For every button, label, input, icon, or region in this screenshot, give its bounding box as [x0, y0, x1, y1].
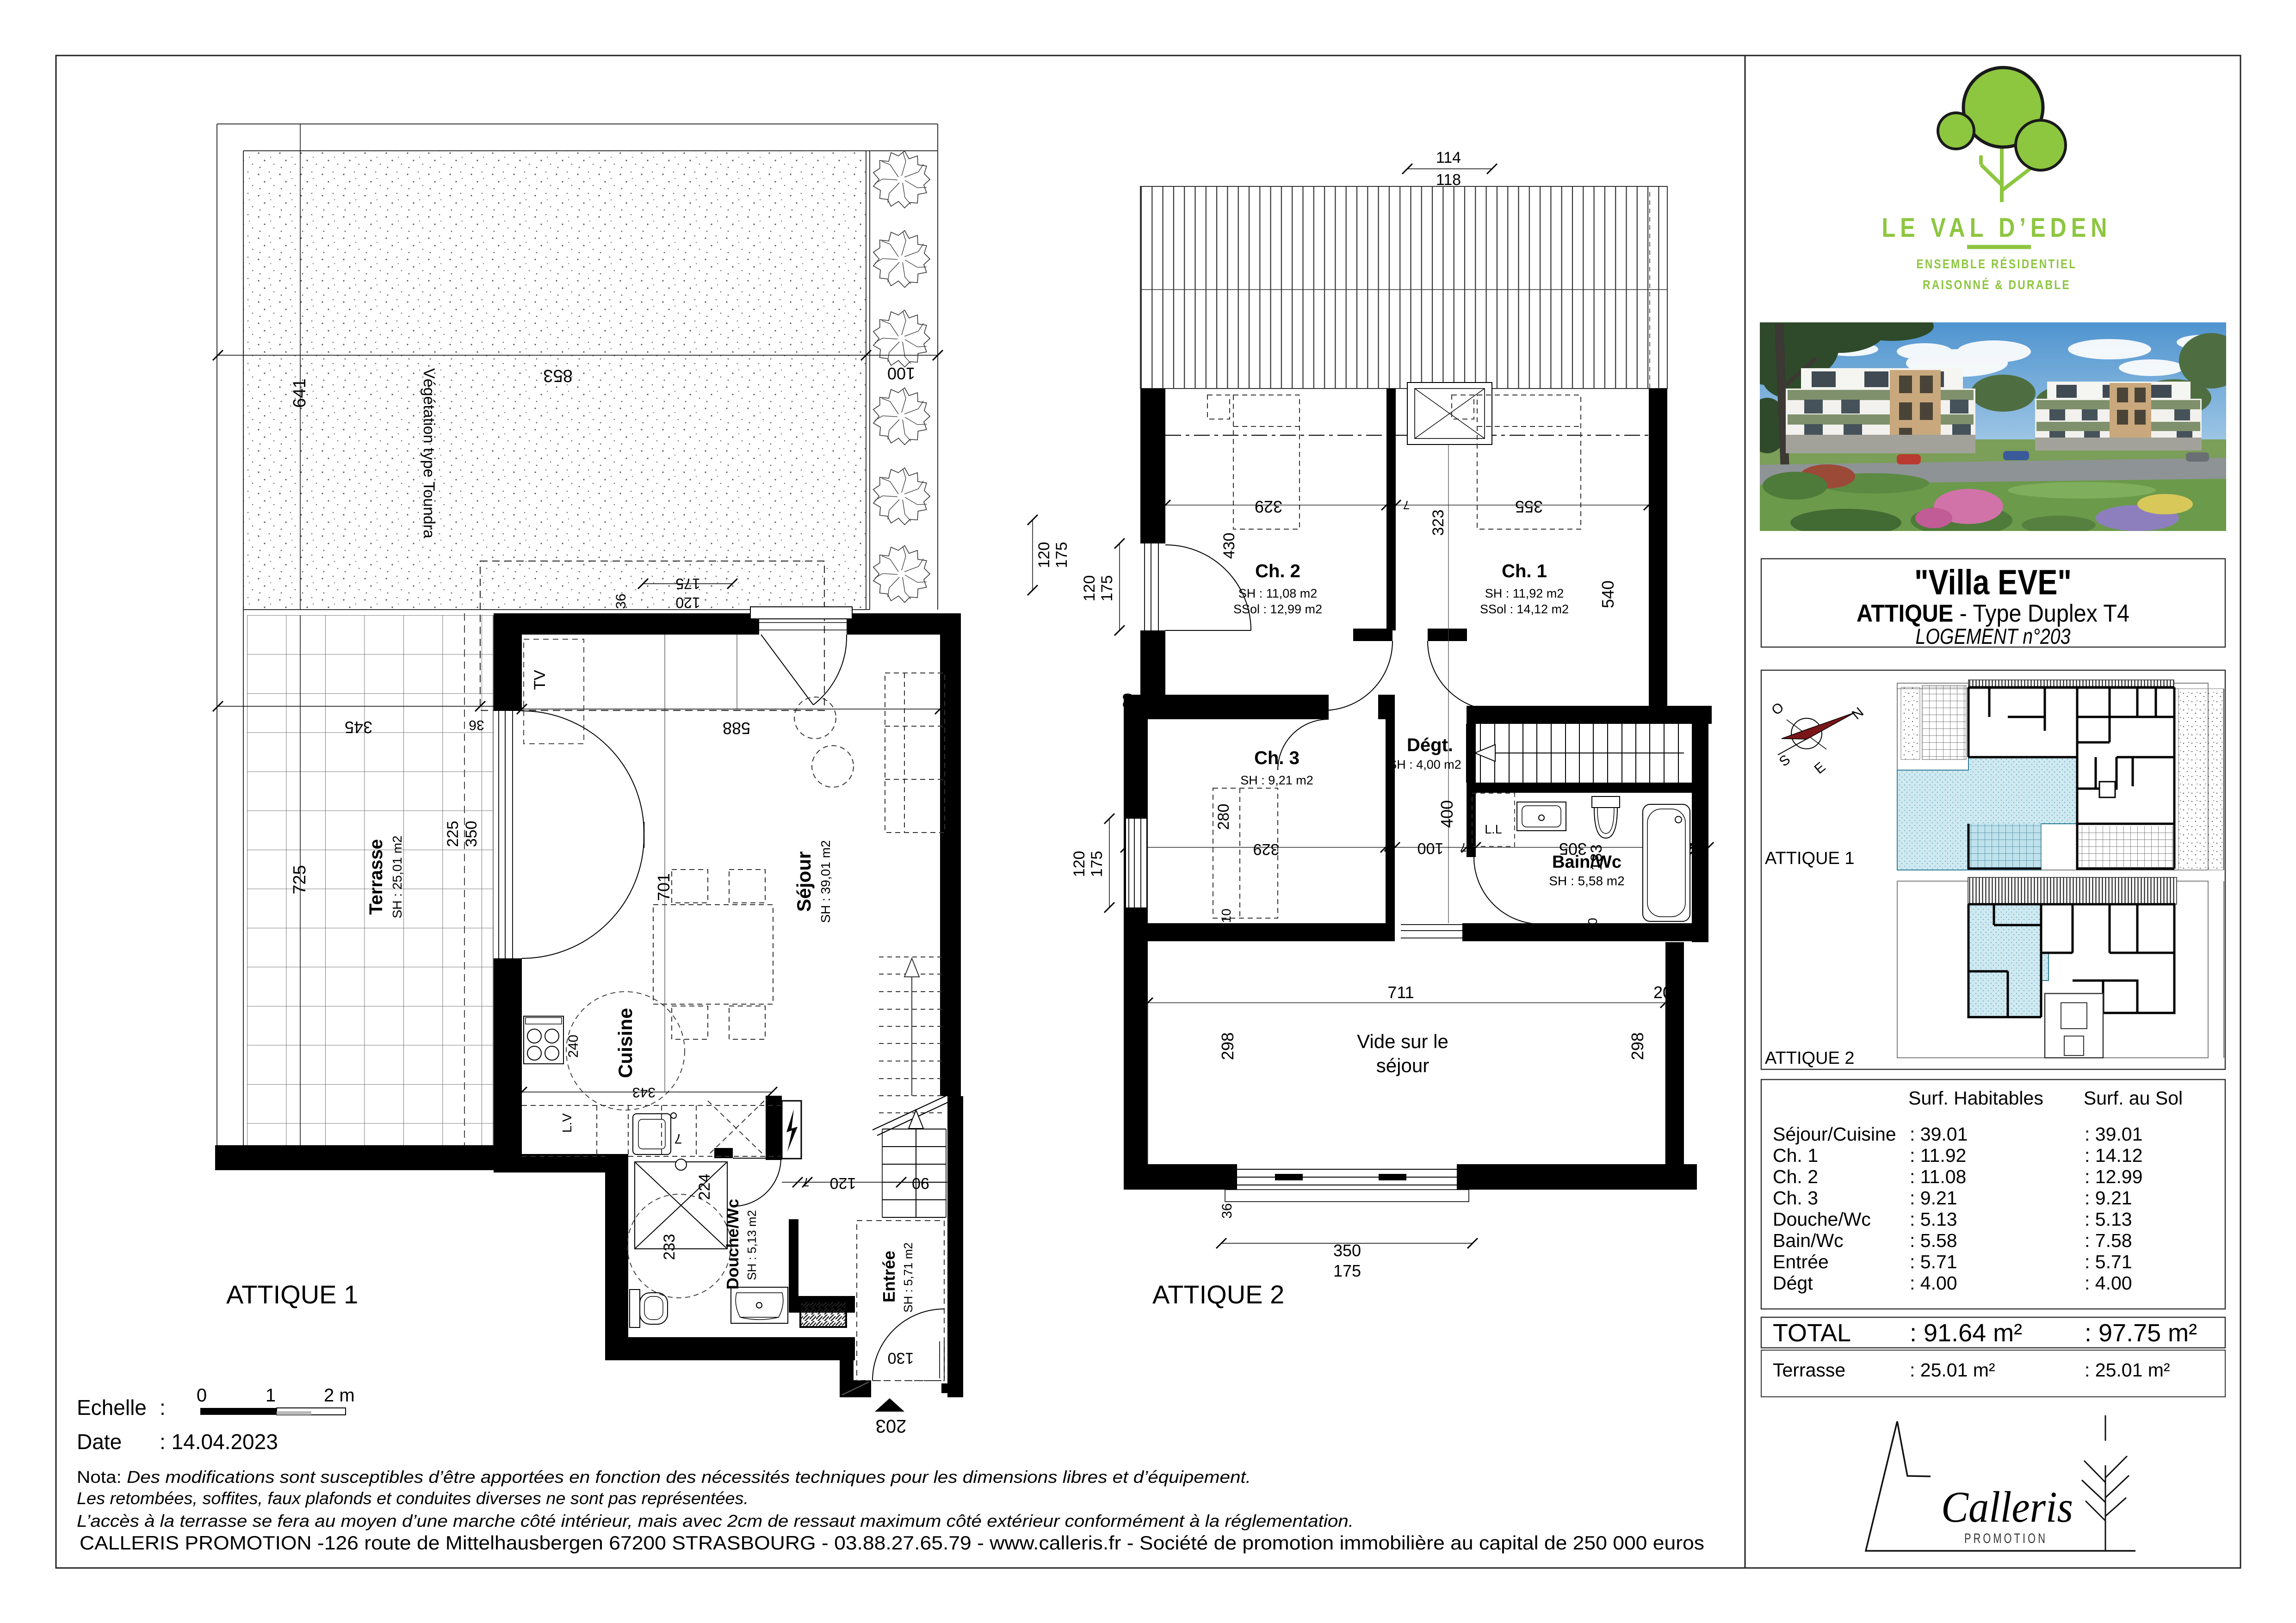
svg-text:120: 120 — [675, 594, 700, 611]
svg-text:Végétation type Toundra: Végétation type Toundra — [420, 368, 438, 538]
svg-text:: 91.64 m²: : 91.64 m² — [1910, 1319, 2022, 1347]
svg-text:175: 175 — [1088, 851, 1106, 877]
svg-text:TOTAL: TOTAL — [1773, 1319, 1851, 1347]
svg-text:120: 120 — [1035, 542, 1053, 568]
svg-text:ATTIQUE 1: ATTIQUE 1 — [1765, 849, 1855, 868]
svg-text:20: 20 — [1120, 693, 1136, 708]
svg-text:711: 711 — [1387, 983, 1414, 1002]
svg-text:Douche/Wc: Douche/Wc — [723, 1199, 742, 1290]
svg-text:345: 345 — [345, 718, 372, 737]
svg-text:Date: Date — [77, 1430, 122, 1454]
svg-text:Séjour/Cuisine: Séjour/Cuisine — [1773, 1123, 1896, 1145]
svg-text:323: 323 — [1430, 510, 1447, 536]
svg-text:SH : 11,92 m2: SH : 11,92 m2 — [1485, 586, 1564, 600]
svg-text:175: 175 — [675, 575, 700, 592]
svg-text:: 11.92: : 11.92 — [1910, 1145, 1966, 1166]
svg-text:588: 588 — [723, 719, 750, 738]
svg-text:: 5.13: : 5.13 — [1910, 1209, 1957, 1230]
svg-text:LE VAL D’EDEN: LE VAL D’EDEN — [1882, 213, 2112, 243]
svg-text:0: 0 — [197, 1385, 207, 1406]
svg-text:Ch. 1: Ch. 1 — [1502, 561, 1547, 581]
svg-text:: 4.00: : 4.00 — [2085, 1272, 2132, 1294]
svg-text:: 39.01: : 39.01 — [1910, 1123, 1968, 1145]
svg-text:L.V: L.V — [560, 1113, 574, 1133]
svg-text:36: 36 — [469, 717, 484, 733]
svg-text:Calleris: Calleris — [1941, 1482, 2073, 1531]
svg-text:Entrée: Entrée — [879, 1251, 898, 1302]
svg-text:Nota: Des modifications sont s: Nota: Des modifications sont susceptible… — [77, 1468, 1251, 1487]
svg-text:120: 120 — [1071, 851, 1088, 877]
svg-text:10: 10 — [1219, 908, 1233, 923]
svg-text::: : — [160, 1395, 166, 1419]
svg-text:: 7.58: : 7.58 — [2085, 1230, 2132, 1251]
svg-text:Douche/Wc: Douche/Wc — [1773, 1209, 1871, 1230]
svg-text:RAISONNÉ & DURABLE: RAISONNÉ & DURABLE — [1923, 278, 2071, 292]
svg-text:100: 100 — [887, 364, 915, 383]
svg-text:540: 540 — [1598, 580, 1617, 608]
svg-text:SH : 25,01 m2: SH : 25,01 m2 — [390, 836, 404, 919]
svg-text:Echelle: Echelle — [77, 1395, 147, 1419]
svg-text:: 12.99: : 12.99 — [2085, 1166, 2142, 1187]
svg-text:ATTIQUE 1: ATTIQUE 1 — [226, 1280, 358, 1309]
svg-text:Entrée: Entrée — [1773, 1251, 1829, 1272]
svg-text:90: 90 — [912, 1174, 929, 1192]
svg-text:Surf. Habitables: Surf. Habitables — [1908, 1087, 2043, 1109]
svg-text:20: 20 — [1653, 983, 1672, 1002]
svg-text:7: 7 — [1403, 498, 1410, 512]
svg-text:118: 118 — [1436, 171, 1461, 189]
svg-text:séjour: séjour — [1376, 1055, 1429, 1076]
svg-text:298: 298 — [1628, 1032, 1647, 1060]
svg-text:: 5.71: : 5.71 — [1910, 1251, 1957, 1272]
svg-text:225: 225 — [444, 821, 462, 847]
svg-text:329: 329 — [1253, 840, 1280, 858]
svg-text:: 25.01 m²: : 25.01 m² — [1910, 1359, 1995, 1381]
svg-text:Séjour: Séjour — [793, 852, 815, 912]
svg-text:1: 1 — [266, 1385, 276, 1406]
svg-text:PROMOTION: PROMOTION — [1964, 1531, 2048, 1546]
svg-text:ENSEMBLE RÉSIDENTIEL: ENSEMBLE RÉSIDENTIEL — [1917, 257, 2077, 271]
svg-text:329: 329 — [1255, 497, 1282, 516]
svg-text:: 9.21: : 9.21 — [2085, 1187, 2132, 1209]
svg-text:7: 7 — [803, 1175, 809, 1189]
svg-text:298: 298 — [1218, 1032, 1237, 1060]
svg-text:7: 7 — [675, 1131, 682, 1146]
svg-text:ATTIQUE 2: ATTIQUE 2 — [1765, 1049, 1855, 1068]
svg-text:10: 10 — [1585, 918, 1600, 932]
svg-text:701: 701 — [654, 873, 673, 901]
svg-text:130: 130 — [888, 1349, 914, 1367]
svg-text:175: 175 — [1098, 575, 1116, 602]
svg-text:175: 175 — [1053, 542, 1071, 568]
svg-text:114: 114 — [1436, 149, 1461, 167]
svg-text:120: 120 — [830, 1174, 856, 1192]
svg-text:430: 430 — [1220, 533, 1238, 559]
svg-text:280: 280 — [1215, 804, 1232, 830]
svg-text:7: 7 — [1460, 840, 1467, 854]
svg-text:Dégt: Dégt — [1773, 1272, 1813, 1294]
svg-text:SSol : 14,12 m2: SSol : 14,12 m2 — [1480, 602, 1569, 616]
svg-text:: 25.01 m²: : 25.01 m² — [2085, 1359, 2170, 1381]
svg-text:224: 224 — [696, 1174, 713, 1200]
svg-text:: 14.04.2023: : 14.04.2023 — [160, 1430, 278, 1454]
svg-text:400: 400 — [1437, 800, 1456, 828]
svg-text:L.L: L.L — [1485, 822, 1502, 836]
svg-text:355: 355 — [1515, 497, 1543, 516]
svg-text:2 m: 2 m — [324, 1385, 355, 1406]
svg-text:: 5.71: : 5.71 — [2085, 1251, 2132, 1272]
svg-text:175: 175 — [1333, 1261, 1361, 1280]
svg-text:350: 350 — [463, 821, 480, 847]
svg-text:Ch. 2: Ch. 2 — [1255, 561, 1300, 581]
svg-text:: 97.75 m²: : 97.75 m² — [2085, 1319, 2197, 1347]
svg-text:Ch. 2: Ch. 2 — [1773, 1166, 1818, 1187]
svg-text:SH : 5,71 m2: SH : 5,71 m2 — [901, 1242, 915, 1313]
svg-text:Terrasse: Terrasse — [366, 839, 386, 915]
svg-text:Bain/Wc: Bain/Wc — [1552, 852, 1621, 872]
svg-text:ATTIQUE 2: ATTIQUE 2 — [1152, 1280, 1284, 1309]
svg-text:343: 343 — [632, 1085, 656, 1100]
svg-text:: 4.00: : 4.00 — [1910, 1272, 1957, 1294]
svg-text:Cuisine: Cuisine — [614, 1008, 636, 1078]
svg-text:725: 725 — [290, 865, 309, 894]
svg-text:SH : 9,21 m2: SH : 9,21 m2 — [1240, 773, 1313, 787]
svg-text:203: 203 — [876, 1416, 907, 1436]
svg-text:"Villa EVE": "Villa EVE" — [1914, 563, 2072, 602]
svg-text:SH : 4,00 m2: SH : 4,00 m2 — [1388, 758, 1461, 771]
svg-text:: 9.21: : 9.21 — [1910, 1187, 1957, 1209]
svg-text:SH : 5,58 m2: SH : 5,58 m2 — [1549, 874, 1624, 888]
svg-text:240: 240 — [566, 1035, 581, 1058]
svg-text:ATTIQUE - Type Duplex T4: ATTIQUE - Type Duplex T4 — [1857, 600, 2129, 627]
svg-text:: 11.08: : 11.08 — [1910, 1166, 1966, 1187]
svg-text:: 5.58: : 5.58 — [1910, 1230, 1957, 1251]
svg-text:: 14.12: : 14.12 — [2085, 1145, 2142, 1166]
svg-text:Ch. 3: Ch. 3 — [1773, 1187, 1818, 1209]
svg-text:641: 641 — [290, 378, 309, 407]
svg-text:SH : 39,01 m2: SH : 39,01 m2 — [818, 840, 833, 923]
svg-text:Les retombées, soffites, faux: Les retombées, soffites, faux plafonds e… — [77, 1489, 749, 1508]
svg-text:L’accès à la terrasse se fera: L’accès à la terrasse se fera au moyen d… — [77, 1512, 1354, 1530]
svg-text:Ch. 3: Ch. 3 — [1254, 748, 1300, 768]
svg-text:Ch. 1: Ch. 1 — [1773, 1145, 1818, 1166]
svg-text:: 5.13: : 5.13 — [2085, 1209, 2132, 1230]
svg-text:: 39.01: : 39.01 — [2085, 1123, 2142, 1145]
svg-text:233: 233 — [661, 1234, 678, 1260]
svg-text:120: 120 — [1081, 575, 1098, 602]
svg-text:SH : 11,08 m2: SH : 11,08 m2 — [1238, 586, 1318, 600]
svg-text:36: 36 — [613, 593, 629, 609]
svg-text:CALLERIS PROMOTION -126 route: CALLERIS PROMOTION -126 route de Mittelh… — [80, 1532, 1704, 1554]
svg-text:SH : 5,13 m2: SH : 5,13 m2 — [745, 1210, 759, 1280]
svg-text:Vide sur le: Vide sur le — [1357, 1031, 1448, 1052]
svg-text:100: 100 — [1417, 839, 1444, 857]
svg-text:7: 7 — [1384, 840, 1390, 854]
svg-text:TV: TV — [531, 670, 549, 690]
svg-text:Bain/Wc: Bain/Wc — [1773, 1230, 1844, 1251]
svg-text:853: 853 — [543, 366, 572, 385]
svg-text:350: 350 — [1333, 1241, 1361, 1260]
svg-text:36: 36 — [1219, 1203, 1235, 1218]
svg-text:Terrasse: Terrasse — [1773, 1359, 1845, 1381]
svg-text:Surf. au Sol: Surf. au Sol — [2084, 1087, 2183, 1109]
svg-text:LOGEMENT n°203: LOGEMENT n°203 — [1916, 624, 2071, 648]
svg-text:Dégt.: Dégt. — [1407, 735, 1453, 755]
